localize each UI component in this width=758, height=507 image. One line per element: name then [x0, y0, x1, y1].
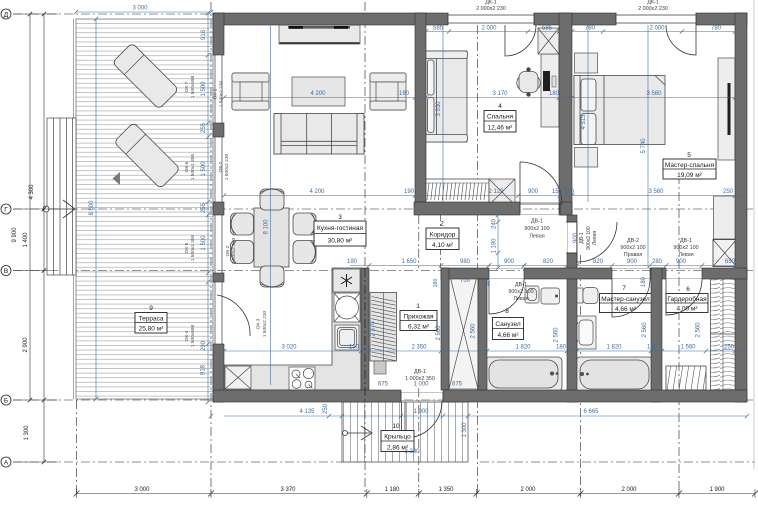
svg-text:900: 900	[504, 259, 515, 265]
svg-text:ОК-2: ОК-2	[225, 245, 231, 256]
svg-text:1 500: 1 500	[201, 81, 207, 97]
svg-text:675: 675	[378, 382, 389, 388]
svg-text:180: 180	[641, 276, 647, 287]
svg-text:1 500х2 230: 1 500х2 230	[231, 237, 237, 264]
svg-text:5: 5	[687, 152, 691, 159]
svg-text:2 000х2 230: 2 000х2 230	[638, 6, 668, 12]
svg-text:Коридор: Коридор	[430, 232, 456, 239]
svg-text:Левая: Левая	[678, 252, 693, 258]
svg-text:1 820: 1 820	[606, 345, 622, 351]
svg-text:2 900: 2 900	[23, 337, 29, 353]
svg-text:900: 900	[676, 259, 687, 265]
svg-text:3 000: 3 000	[132, 6, 148, 12]
svg-text:ДВ-2: ДВ-2	[627, 238, 639, 244]
svg-text:3 560: 3 560	[646, 91, 662, 97]
svg-text:Прихожая: Прихожая	[403, 314, 434, 321]
svg-text:4,10 м²: 4,10 м²	[432, 242, 454, 249]
svg-text:900х2 100: 900х2 100	[673, 245, 698, 251]
svg-text:30,80 м²: 30,80 м²	[328, 238, 354, 245]
svg-text:Г: Г	[4, 207, 8, 214]
svg-text:180: 180	[485, 278, 491, 287]
svg-text:1 500х1 355: 1 500х1 355	[190, 153, 196, 180]
svg-text:ДК-1: ДК-1	[485, 0, 497, 6]
svg-text:2 560: 2 560	[696, 322, 702, 338]
svg-text:2: 2	[440, 221, 444, 228]
svg-text:Санузел: Санузел	[495, 321, 521, 328]
svg-text:3 000: 3 000	[134, 487, 150, 493]
svg-text:180: 180	[556, 345, 567, 351]
svg-text:190: 190	[347, 259, 358, 265]
svg-text:1 500: 1 500	[201, 235, 207, 251]
svg-text:1 900: 1 900	[709, 487, 725, 493]
svg-text:4 135: 4 135	[299, 409, 315, 415]
svg-text:2 560: 2 560	[554, 327, 560, 343]
svg-text:Левая: Левая	[513, 296, 528, 302]
svg-text:2 000: 2 000	[649, 26, 665, 32]
svg-text:900х2 100: 900х2 100	[620, 245, 645, 251]
svg-text:4,66 м²: 4,66 м²	[497, 332, 519, 339]
svg-text:ДВ-1: ДВ-1	[414, 369, 426, 375]
svg-text:820: 820	[593, 259, 604, 265]
svg-text:1 560: 1 560	[680, 345, 696, 351]
svg-text:19,09 м²: 19,09 м²	[677, 172, 703, 179]
svg-text:190: 190	[404, 189, 415, 195]
svg-text:4 300: 4 300	[29, 184, 35, 200]
svg-text:Кухня-гостиная: Кухня-гостиная	[317, 225, 363, 232]
svg-text:6: 6	[686, 286, 690, 293]
svg-text:3 560: 3 560	[648, 189, 664, 195]
svg-text:Б: Б	[4, 398, 8, 405]
svg-text:2 000: 2 000	[520, 487, 536, 493]
svg-text:2 000: 2 000	[621, 487, 637, 493]
svg-text:280: 280	[652, 259, 663, 265]
svg-text:2 560: 2 560	[436, 325, 442, 341]
svg-text:2 560: 2 560	[642, 322, 648, 338]
svg-text:4: 4	[498, 103, 502, 110]
svg-text:5 740: 5 740	[641, 138, 647, 154]
svg-text:900: 900	[627, 259, 638, 265]
svg-text:Правая: Правая	[624, 252, 643, 258]
svg-text:2 000х2 230: 2 000х2 230	[476, 6, 506, 12]
svg-text:918: 918	[201, 364, 207, 375]
svg-text:180: 180	[549, 91, 560, 97]
svg-text:3: 3	[338, 214, 342, 221]
svg-text:1 500х2 230: 1 500х2 230	[219, 80, 225, 107]
svg-text:Мастер-спальня: Мастер-спальня	[665, 162, 715, 169]
svg-text:6 665: 6 665	[583, 409, 599, 415]
svg-text:Крыльцо: Крыльцо	[384, 434, 411, 441]
svg-text:3 930: 3 930	[436, 101, 442, 117]
svg-text:ОК-2: ОК-2	[218, 161, 224, 172]
svg-text:3 280: 3 280	[404, 449, 420, 455]
svg-text:650: 650	[725, 259, 736, 265]
svg-text:1 190: 1 190	[492, 238, 498, 254]
svg-text:1 400: 1 400	[23, 232, 29, 248]
svg-text:1 500х698: 1 500х698	[190, 75, 196, 98]
svg-text:918: 918	[201, 29, 207, 40]
svg-text:Д: Д	[4, 12, 9, 19]
svg-text:700: 700	[460, 278, 471, 284]
svg-text:2 000: 2 000	[481, 26, 497, 32]
svg-text:4,00 м²: 4,00 м²	[676, 306, 698, 313]
svg-text:Левая: Левая	[529, 234, 544, 240]
svg-text:250: 250	[723, 189, 734, 195]
svg-text:3 370: 3 370	[280, 487, 296, 493]
svg-text:255: 255	[201, 122, 207, 133]
svg-text:ОК-3: ОК-3	[256, 318, 262, 329]
svg-text:900: 900	[573, 232, 579, 243]
svg-text:ОК-6: ОК-6	[184, 161, 190, 172]
svg-text:2 370: 2 370	[371, 321, 377, 337]
svg-text:2 560: 2 560	[471, 323, 477, 339]
svg-text:1 350: 1 350	[438, 487, 454, 493]
svg-text:2 350: 2 350	[411, 345, 427, 351]
svg-text:1 300: 1 300	[462, 422, 468, 438]
svg-text:1 300: 1 300	[24, 425, 30, 441]
svg-text:9 900: 9 900	[12, 227, 18, 243]
svg-text:6,32 м²: 6,32 м²	[408, 324, 430, 331]
svg-text:7: 7	[622, 285, 626, 292]
svg-text:820: 820	[543, 259, 554, 265]
svg-text:1 000: 1 000	[413, 409, 429, 415]
svg-text:А: А	[4, 460, 9, 467]
svg-text:3 020: 3 020	[281, 345, 297, 351]
svg-text:ДВ-1: ДВ-1	[531, 219, 543, 225]
svg-text:Терраса: Терраса	[139, 316, 164, 323]
svg-text:1 650: 1 650	[401, 259, 417, 265]
svg-text:Гардеробная: Гардеробная	[667, 295, 707, 303]
svg-text:ДК-1: ДК-1	[647, 0, 659, 6]
svg-text:250: 250	[323, 403, 329, 414]
svg-text:900х2 100: 900х2 100	[508, 289, 533, 295]
svg-text:3 170: 3 170	[492, 91, 508, 97]
svg-text:180: 180	[433, 279, 439, 288]
svg-text:1 500х2 230: 1 500х2 230	[224, 153, 230, 180]
svg-text:1: 1	[416, 303, 420, 310]
svg-text:8 600: 8 600	[89, 200, 95, 216]
svg-text:980: 980	[460, 259, 471, 265]
svg-text:ДВ-1: ДВ-1	[680, 238, 692, 244]
svg-text:25,80 м²: 25,80 м²	[139, 326, 165, 333]
svg-text:675: 675	[452, 382, 463, 388]
svg-text:190: 190	[399, 91, 410, 97]
svg-text:250: 250	[724, 345, 735, 351]
svg-text:4,66 м²: 4,66 м²	[615, 306, 637, 313]
svg-text:900: 900	[528, 189, 539, 195]
svg-text:1 000х2 350: 1 000х2 350	[405, 376, 435, 382]
svg-text:8 100: 8 100	[264, 219, 270, 235]
svg-text:4 200: 4 200	[309, 189, 325, 195]
svg-text:4 515: 4 515	[581, 114, 587, 130]
svg-text:780: 780	[711, 26, 722, 32]
svg-text:ДВ-1: ДВ-1	[579, 232, 585, 243]
svg-text:1 500х2 230: 1 500х2 230	[262, 310, 268, 337]
svg-text:10: 10	[392, 423, 400, 430]
svg-text:1 500: 1 500	[201, 161, 207, 177]
svg-text:1 180: 1 180	[384, 487, 400, 493]
svg-text:ОК-2: ОК-2	[213, 88, 219, 99]
svg-text:ОК-4: ОК-4	[184, 330, 190, 341]
svg-text:ОК-5: ОК-5	[184, 242, 190, 253]
svg-text:Спальня: Спальня	[487, 114, 514, 121]
svg-text:585: 585	[542, 26, 553, 32]
svg-text:1 500х698: 1 500х698	[190, 324, 196, 347]
svg-text:В: В	[4, 268, 8, 275]
svg-text:Левая: Левая	[592, 231, 598, 245]
svg-text:1 500х1 355: 1 500х1 355	[190, 234, 196, 261]
svg-text:2 129: 2 129	[488, 189, 504, 195]
svg-text:12,46 м²: 12,46 м²	[488, 125, 514, 132]
svg-text:900х2 100: 900х2 100	[524, 226, 549, 232]
svg-text:4 200: 4 200	[310, 91, 326, 97]
svg-text:ОК-7: ОК-7	[184, 81, 190, 92]
svg-text:190: 190	[349, 345, 360, 351]
svg-text:780: 780	[585, 26, 596, 32]
svg-text:1 820: 1 820	[515, 345, 531, 351]
svg-text:1 000: 1 000	[413, 382, 429, 388]
svg-text:9: 9	[149, 305, 153, 312]
svg-text:585: 585	[433, 26, 444, 32]
svg-text:ДВ-1: ДВ-1	[515, 282, 527, 288]
